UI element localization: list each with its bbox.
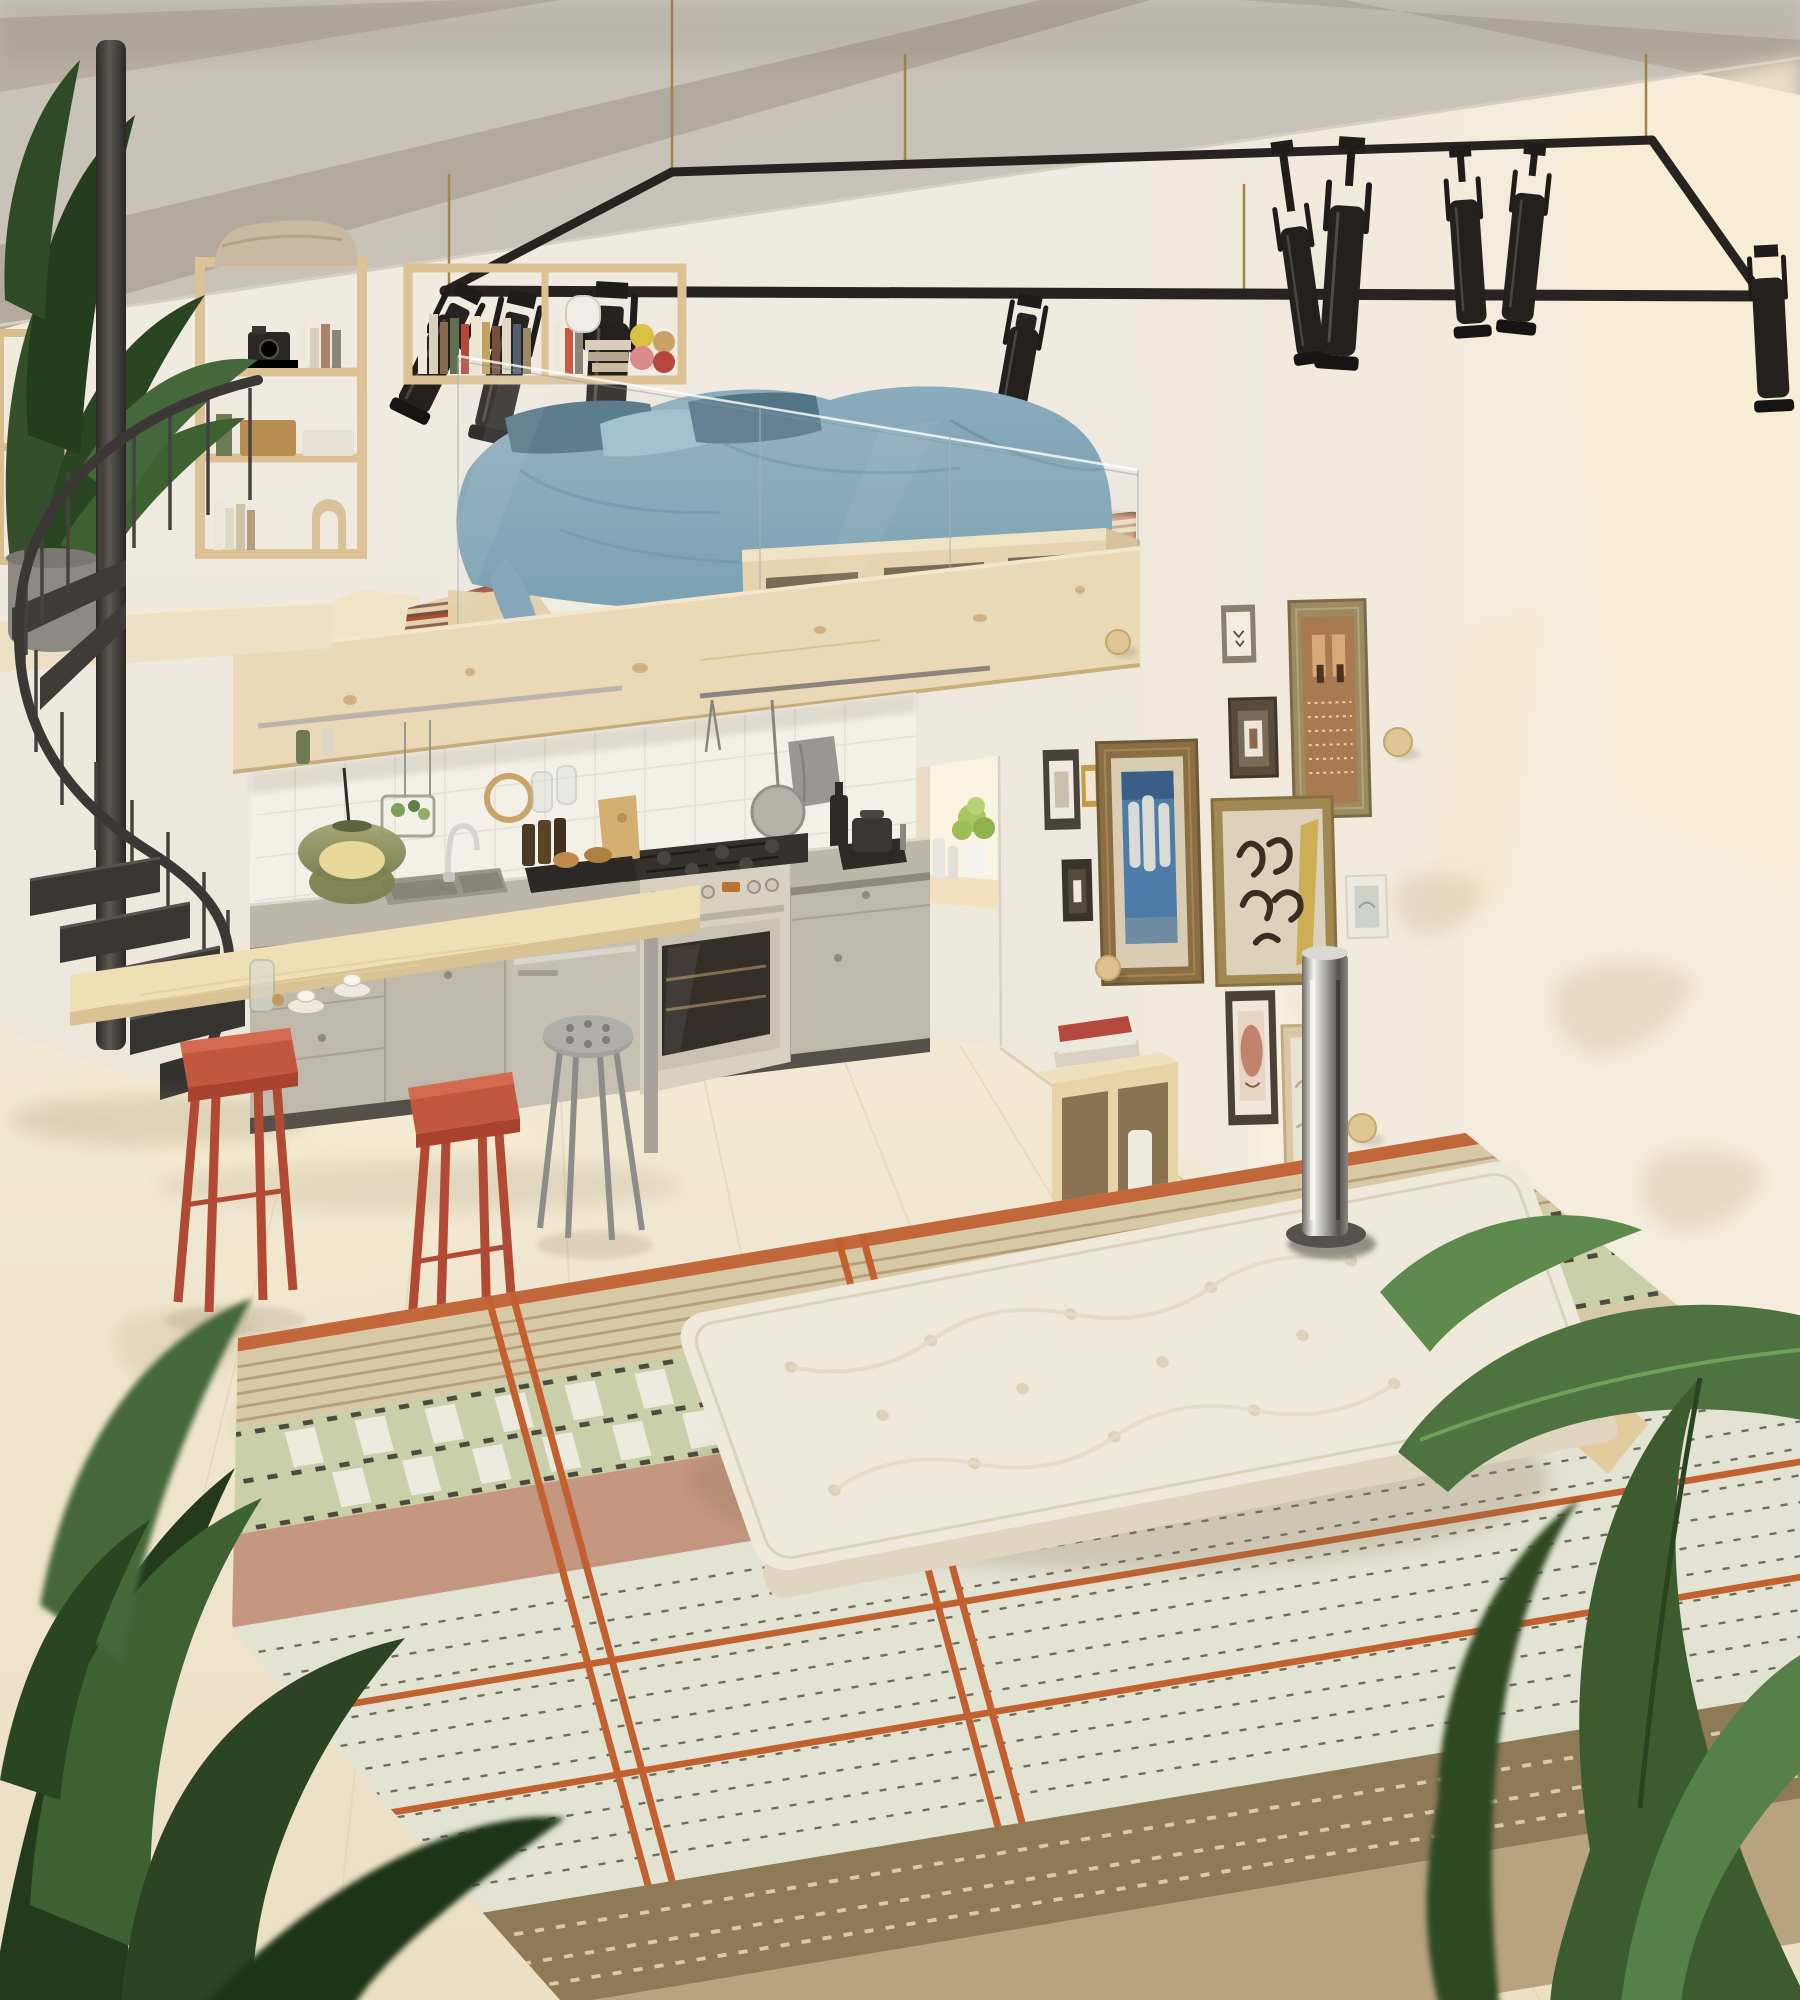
lamp-column	[1302, 952, 1348, 1236]
pastry	[553, 852, 579, 868]
vase	[948, 846, 958, 880]
frame-bird-small	[1221, 604, 1257, 663]
spice-bottle	[538, 820, 551, 864]
frame-dark-small-portrait	[1043, 749, 1081, 830]
frame-white-small	[1346, 875, 1388, 938]
frame-pink-abstract	[1225, 990, 1278, 1125]
figures	[1128, 795, 1171, 872]
pastry	[584, 847, 612, 863]
loft-apartment-render	[0, 0, 1800, 2000]
black-pot	[852, 818, 892, 852]
frame-blue-figures	[1096, 740, 1202, 985]
paper-roll	[1128, 1130, 1152, 1194]
mini-speaker	[566, 296, 600, 332]
lamp-glow	[319, 841, 385, 879]
glass-carafe	[250, 960, 274, 1012]
plant-pot	[962, 842, 988, 874]
oil-bottle	[830, 795, 848, 852]
steel-pan	[752, 786, 804, 838]
small-device	[302, 430, 354, 456]
pastry-bite	[272, 994, 284, 1006]
frame-carved-square	[1229, 698, 1277, 777]
bar-leg	[644, 918, 658, 1153]
vignette	[0, 0, 1800, 60]
glass-jar	[532, 772, 552, 812]
vase	[933, 838, 945, 878]
frame-dark-deep	[1062, 859, 1094, 922]
spice-bottle	[522, 824, 535, 866]
frame-tall-interior	[1289, 600, 1371, 818]
hanging-bottle	[296, 730, 310, 764]
pot-handle	[900, 824, 906, 850]
scene-canvas	[0, 0, 1800, 2000]
coffee-cup	[297, 990, 315, 1002]
lamp-top	[1302, 946, 1348, 960]
glass-jar	[557, 766, 576, 804]
range-display	[722, 882, 740, 892]
hanging-cup	[322, 728, 335, 756]
pot-rim	[6, 548, 98, 568]
coffee-cup	[343, 974, 361, 986]
